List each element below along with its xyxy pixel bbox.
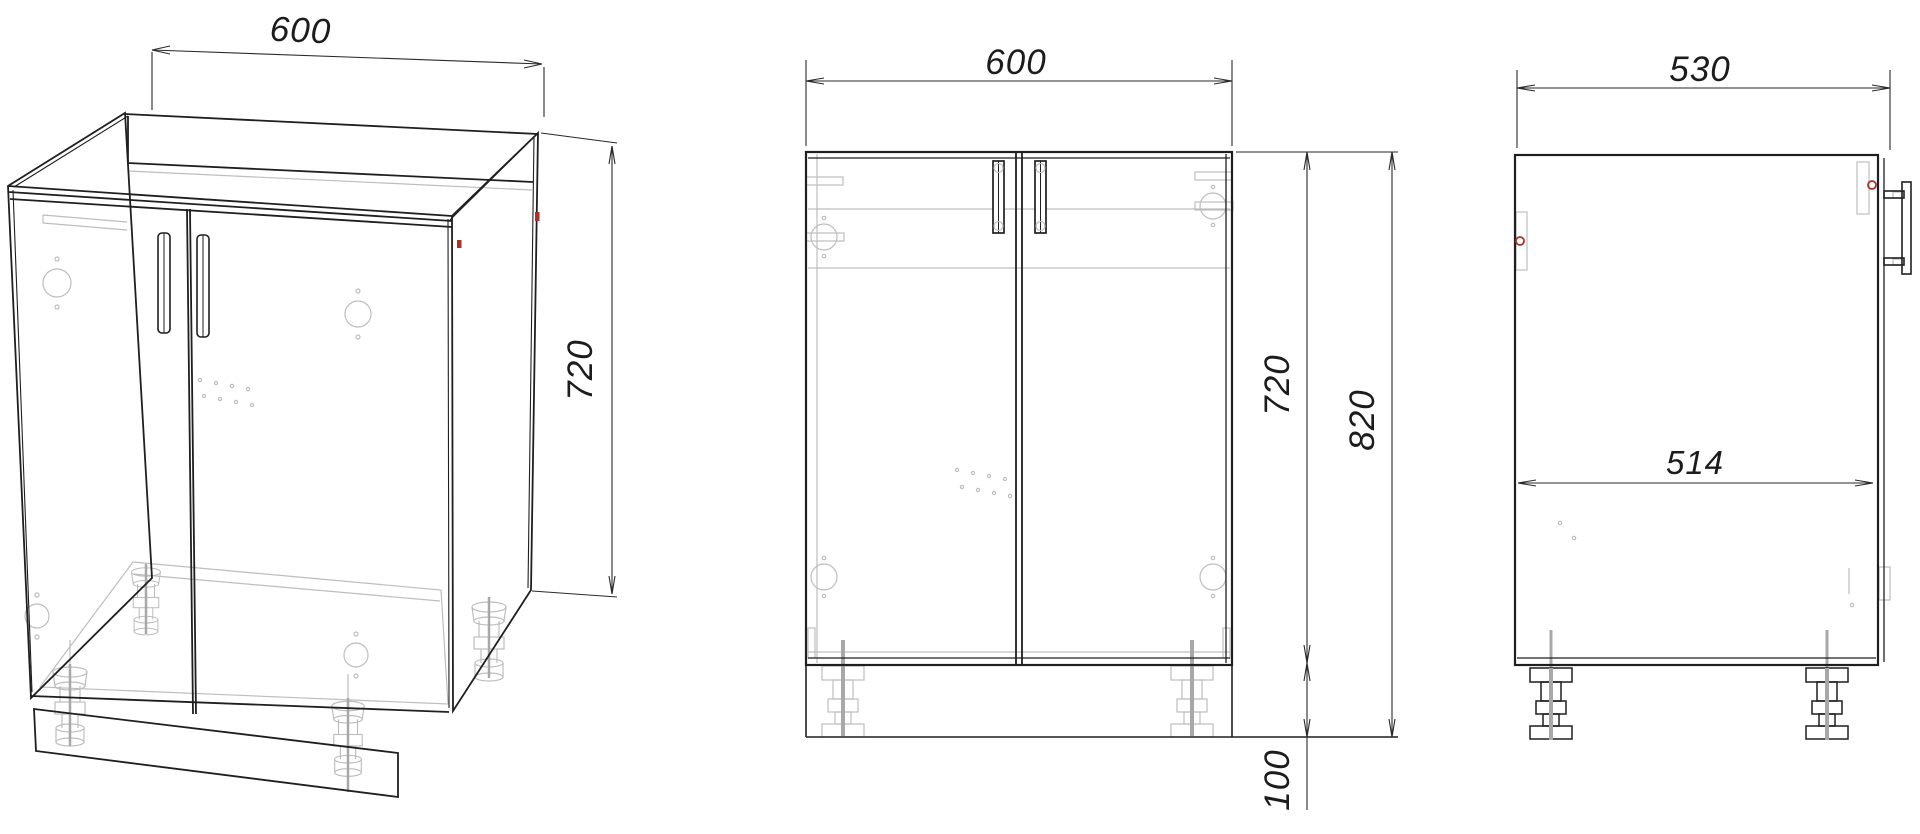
side-red-fitting-mark-2 — [1516, 237, 1524, 245]
side-view: 530 514 — [1515, 50, 1911, 740]
iso-door-handles — [158, 233, 209, 337]
front-total-height-dim-label: 820 — [1343, 389, 1382, 450]
front-dimensions — [806, 60, 1398, 810]
isometric-view: 600 720 — [8, 10, 617, 797]
iso-cabinet-outline — [8, 113, 538, 797]
front-body-height-dim-label: 720 — [1258, 354, 1297, 415]
iso-height-dim-label: 720 — [561, 339, 600, 400]
side-depth-dim-label: 530 — [1669, 50, 1730, 89]
side-inner-depth-dim-label: 514 — [1666, 444, 1724, 481]
front-door-handles — [993, 161, 1046, 233]
iso-dimensions — [152, 46, 617, 597]
front-hidden-lines — [806, 154, 1233, 737]
iso-width-dim-label: 600 — [269, 10, 332, 52]
side-hidden-lines — [1516, 162, 1902, 668]
side-dimensions — [1517, 70, 1890, 486]
front-view: 600 720 820 100 — [806, 43, 1398, 811]
drawing-sheet: 600 720 — [0, 0, 1920, 834]
iso-red-fitting-mark-2 — [457, 240, 462, 248]
iso-red-fitting-mark-1 — [535, 212, 540, 221]
technical-drawing-canvas: 600 720 — [0, 0, 1920, 834]
front-leg-height-dim-label: 100 — [1258, 749, 1297, 810]
front-width-dim-label: 600 — [985, 43, 1046, 82]
